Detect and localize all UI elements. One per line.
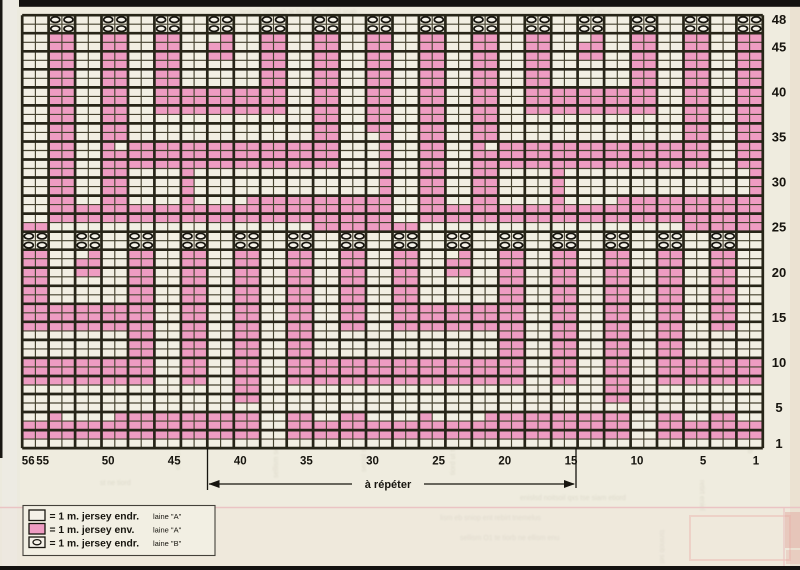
svg-text:20: 20 <box>498 456 511 468</box>
svg-text:= 1 m. jersey endr.: = 1 m. jersey endr. <box>50 512 140 523</box>
svg-text:48: 48 <box>772 12 786 27</box>
svg-text:retirt eniel: retirt eniel <box>698 480 705 511</box>
svg-text:50: 50 <box>102 456 115 468</box>
svg-text:= 1 m. jersey endr.: = 1 m. jersey endr. <box>50 539 140 550</box>
svg-text:enislsd noitsoil qxs tse siam: enislsd noitsoil qxs tse siam etiord <box>520 495 626 502</box>
svg-text:10: 10 <box>772 355 786 370</box>
svg-text:laine "A": laine "A" <box>153 526 182 535</box>
svg-text:30: 30 <box>772 175 786 190</box>
svg-text:à répéter: à répéter <box>365 479 412 491</box>
svg-text:40: 40 <box>234 456 247 468</box>
svg-text:10: 10 <box>631 456 644 468</box>
svg-text:40: 40 <box>772 84 786 99</box>
svg-text:25: 25 <box>772 220 786 235</box>
svg-text:35: 35 <box>772 130 786 145</box>
svg-text:1: 1 <box>753 456 760 468</box>
svg-text:30: 30 <box>366 456 379 468</box>
svg-text:st ne tiord: st ne tiord <box>100 480 131 487</box>
svg-text:laine "B": laine "B" <box>153 539 182 548</box>
svg-text:20: 20 <box>772 265 786 280</box>
svg-text:5: 5 <box>775 400 782 415</box>
svg-text:56: 56 <box>22 456 35 468</box>
svg-text:45: 45 <box>168 456 181 468</box>
svg-text:25: 25 <box>432 456 445 468</box>
svg-text:laine "A": laine "A" <box>153 512 182 521</box>
svg-text:5: 5 <box>700 456 707 468</box>
svg-text:1: 1 <box>775 436 782 451</box>
svg-text:55: 55 <box>36 456 49 468</box>
svg-text:35: 35 <box>300 456 313 468</box>
svg-text:= 1 m. jersey env.: = 1 m. jersey env. <box>50 525 135 536</box>
svg-text:15: 15 <box>772 310 786 325</box>
svg-text:45: 45 <box>772 39 786 54</box>
